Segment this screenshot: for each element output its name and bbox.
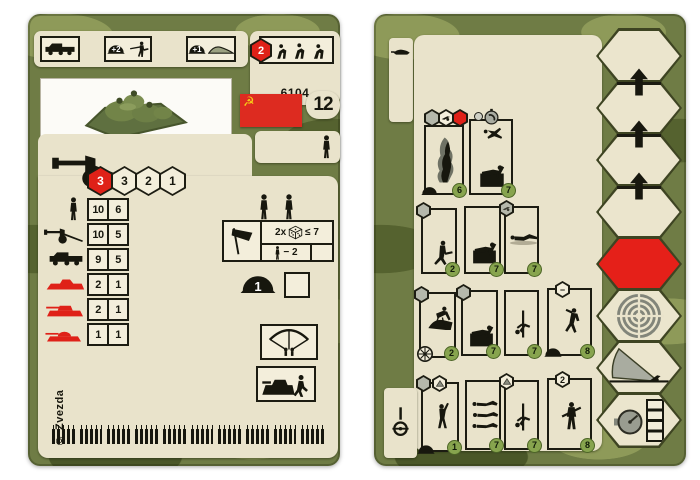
order-box-rifleman: 2 8 [547, 378, 592, 450]
grenade-icon [483, 108, 500, 125]
ring-icon [474, 112, 483, 121]
hit-cell: 6 [107, 198, 129, 221]
order-box-pole: 7 [504, 290, 539, 356]
tank-icon [44, 326, 84, 343]
attack-row-light-tank: 2 1 [28, 298, 340, 321]
range-cell: 10 [87, 223, 109, 246]
firing-soldier-icon [127, 41, 149, 57]
order-box-grenade: 7 [469, 119, 513, 195]
unit-stat-card: +2 +1 2 6104 ☭ 1 [28, 14, 340, 466]
soldier-icon [258, 194, 270, 220]
falling-from-pole-icon [512, 392, 534, 442]
emplacement-icon [208, 43, 234, 55]
order-box-diving: 7 [461, 290, 498, 356]
result-badge: 7 [527, 438, 542, 453]
assault-multiplier: 2x [275, 227, 286, 238]
helmet-icon [544, 347, 562, 358]
airborne-box [260, 324, 318, 360]
parachute-icon [267, 327, 311, 357]
order-reference-card: 6 7 2 7 7 2 7 7 − [374, 14, 686, 466]
hit-cell: 5 [107, 223, 129, 246]
unit-strength-pill: 12 [306, 91, 340, 119]
gun-crew-icon [272, 41, 330, 60]
ammo-group [80, 429, 103, 444]
field-gun-icon [42, 224, 86, 245]
ammo-group [52, 429, 75, 444]
order-box-killed: 7 [504, 206, 539, 274]
result-badge: 7 [486, 344, 501, 359]
stopwatch-icon [608, 398, 670, 442]
order-box-pole2: 7 [504, 380, 539, 450]
entrench-bonus-box: +1 [186, 36, 236, 62]
order-box-casualty: 7 [464, 206, 501, 274]
ammo-group [274, 429, 297, 444]
result-badge: 6 [452, 183, 467, 198]
move-up-arrow-icon [630, 172, 648, 200]
assault-box: 2x ≤ 7 − 2 [222, 220, 334, 262]
result-badge: 7 [527, 344, 542, 359]
target-hex [596, 288, 682, 344]
helmet-icon: +1 [188, 44, 206, 55]
falling-from-pole-icon [512, 300, 534, 348]
result-badge: 8 [580, 344, 595, 359]
result-badge: 1 [447, 440, 462, 455]
ammo-group [163, 429, 186, 444]
machine-gun-icon [391, 404, 410, 442]
hit-cell: 1 [107, 298, 129, 321]
result-badge: 7 [489, 262, 504, 277]
ammo-group [301, 429, 324, 444]
dice-icon [288, 225, 303, 240]
ammo-group [135, 429, 158, 444]
fallen-soldier-icon [508, 230, 539, 246]
loss-box [284, 272, 310, 298]
range-cell: 2 [87, 298, 109, 321]
smoke-cloud-icon [433, 131, 458, 189]
order-box-fire: 2 [421, 208, 457, 274]
soldier-icon [283, 194, 295, 220]
crew-hex-value: 2 [252, 40, 270, 61]
rifleman-icon [558, 388, 585, 444]
result-badge: 7 [501, 183, 516, 198]
wheel-icon [416, 345, 434, 363]
soldier-icon [274, 246, 281, 260]
blasted-soldier-icon [482, 126, 508, 143]
falling-soldier-icon [561, 298, 583, 344]
passenger-box [255, 131, 340, 163]
unit-photo [40, 78, 232, 142]
climbing-soldier-icon [432, 390, 453, 442]
range-cell: 2 [87, 273, 109, 296]
prone-soldier-icon [391, 47, 411, 56]
order-box-mg-nest: 2 [419, 292, 456, 358]
tank-rider-box [256, 366, 316, 402]
tank-icon [44, 300, 86, 318]
infantry-icon [68, 197, 79, 221]
result-badge: 7 [527, 262, 542, 277]
result-badge: 2 [444, 346, 459, 361]
miniature-image [41, 79, 231, 141]
unit-strength: 12 [313, 94, 332, 116]
helmet-counter: 1 [240, 274, 276, 298]
red-hex [596, 236, 682, 292]
armored-car-icon [44, 277, 86, 292]
timer-hex [596, 392, 682, 448]
hit-cell: 5 [107, 248, 129, 271]
range-cell: 1 [87, 323, 109, 346]
range-cell: 10 [87, 198, 109, 221]
target-icon [607, 293, 671, 339]
assault-roll: ≤ 7 [305, 227, 319, 238]
result-badge: 8 [580, 438, 595, 453]
gun-tab [389, 38, 413, 122]
hammer-sickle-icon: ☭ [243, 94, 255, 110]
cover-bonus-value: +2 [107, 45, 125, 54]
helmet-icon [421, 186, 438, 196]
move-up-arrow-icon [630, 68, 648, 96]
helmet-value: 1 [240, 279, 276, 294]
soviet-flag: ☭ [240, 94, 302, 127]
result-badge: 2 [445, 262, 460, 277]
hit-cell: 1 [107, 273, 129, 296]
soldier-icon [321, 135, 332, 159]
truck-icon [48, 250, 84, 267]
ammo-group [191, 429, 214, 444]
order-box-bodies: 7 [465, 380, 501, 450]
order-box-falling: − 8 [547, 288, 592, 356]
order-box-smoke: 6 [424, 125, 464, 195]
tank-rider-icon [261, 370, 311, 398]
order-box-climbing: 1 [421, 382, 459, 452]
cover-bonus-box: +2 [104, 36, 152, 62]
truck-icon [44, 41, 76, 57]
helmet-icon [417, 444, 435, 455]
fire-arc-hex [596, 340, 682, 396]
mg-nest-icon [425, 304, 454, 330]
entrench-bonus-value: +1 [188, 45, 206, 54]
casualties-icon [470, 390, 500, 442]
hit-cell: 1 [107, 323, 129, 346]
range-cell: 9 [87, 248, 109, 271]
move-up-arrow-icon [630, 120, 648, 148]
flag-icon [229, 226, 255, 256]
mg-tab [384, 388, 417, 458]
helmet-icon: +2 [107, 44, 125, 55]
ammo-track [52, 429, 324, 444]
assault-penalty: − 2 [283, 247, 297, 258]
fire-arc-icon [604, 345, 674, 391]
ammo-group [107, 429, 130, 444]
empty-cell [310, 245, 332, 260]
transport-box [40, 36, 80, 62]
result-badge: 7 [489, 438, 504, 453]
ammo-group [246, 429, 269, 444]
ammo-group [218, 429, 241, 444]
